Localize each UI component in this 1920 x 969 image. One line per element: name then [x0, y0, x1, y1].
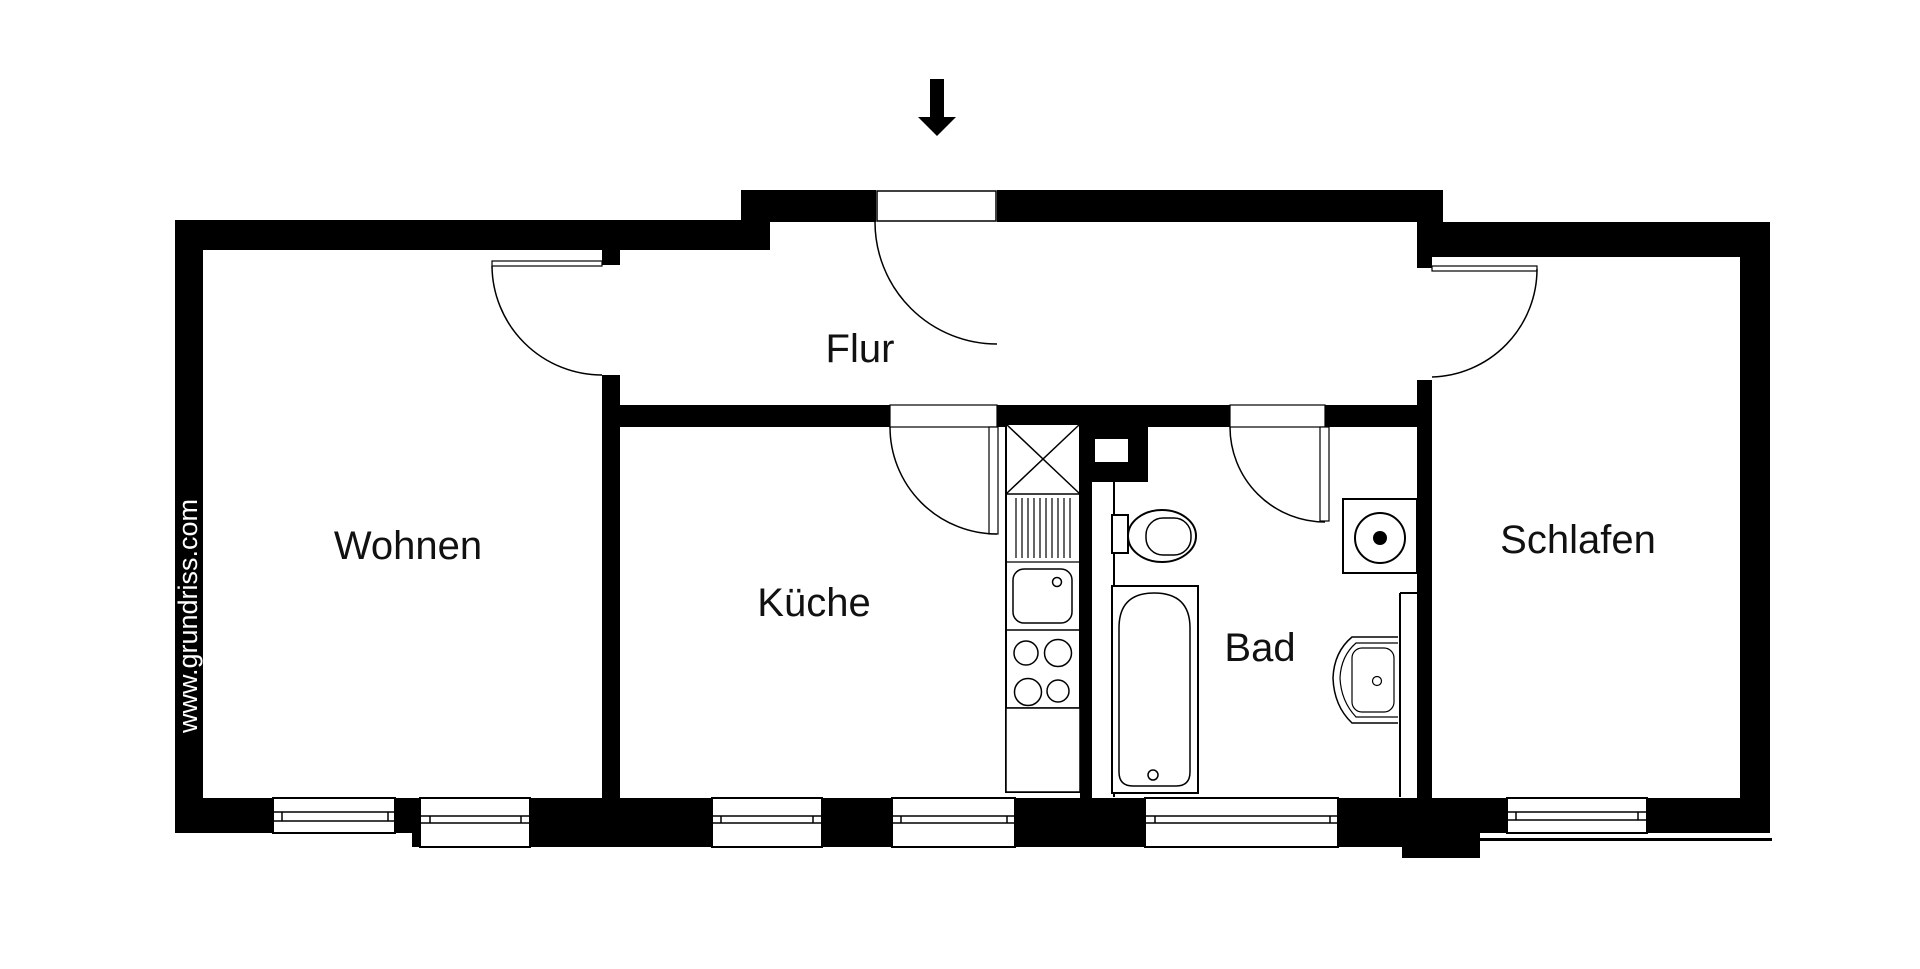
wall-segment-bottom-ledge [1480, 838, 1772, 841]
kueche-door-swing-icon [890, 405, 998, 534]
wall-segment-entrance-left [741, 190, 876, 222]
room-label-kueche: Küche [757, 581, 870, 625]
room-label-schlafen: Schlafen [1500, 518, 1656, 562]
duct-opening [1095, 439, 1128, 462]
entrance-arrow-icon [918, 79, 956, 136]
floor-plan-canvas: Flur Wohnen Küche Bad Schlafen www.grund… [0, 0, 1920, 969]
bad-door-swing-icon [1230, 405, 1329, 522]
kitchen-unit [1006, 424, 1080, 792]
wall-segment-bad-schlafen [1417, 380, 1432, 833]
window-icon-wohnen-2 [420, 798, 530, 847]
wall-segment-flur-bottom-3 [1325, 405, 1417, 427]
wall-segment-wohnen-divider-stub [602, 250, 620, 265]
kitchen-cabinet-icon [1006, 708, 1080, 792]
wall-segment-bottom-step [1402, 833, 1480, 858]
wall-segment-top-west [175, 220, 770, 250]
window-icon-bad [1145, 798, 1338, 847]
bathtub-icon [1112, 586, 1198, 793]
room-label-bad: Bad [1224, 626, 1295, 670]
window-icon-kueche-2 [892, 798, 1015, 847]
schlafen-door-swing-icon [1416, 266, 1537, 380]
room-label-flur: Flur [826, 327, 895, 371]
wall-segment-right-outer [1740, 222, 1770, 833]
window-icon-kueche-1 [712, 798, 822, 847]
room-label-wohnen: Wohnen [334, 524, 482, 568]
wall-segment-flur-bottom-1 [620, 405, 890, 427]
wall-segment-kueche-bad-divider [1080, 427, 1092, 798]
washing-machine-icon [1343, 499, 1417, 573]
wall-segment-entrance-right [997, 190, 1443, 222]
washbasin-icon [1333, 637, 1398, 723]
wall-segment-wohnen-divider [602, 375, 620, 798]
wall-segment-schlafen-top [1417, 222, 1770, 257]
toilet-icon [1112, 510, 1196, 562]
entrance-door-swing-icon [875, 189, 997, 344]
watermark-text: www.grundriss.com [173, 499, 203, 734]
window-icon-wohnen-1 [273, 798, 395, 833]
window-icon-schlafen [1507, 798, 1647, 833]
floor-plan: Flur Wohnen Küche Bad Schlafen www.grund… [0, 0, 1920, 969]
wohnen-door-swing-icon [492, 261, 621, 375]
wall-segment-bad-schlafen-stub [1417, 257, 1432, 268]
